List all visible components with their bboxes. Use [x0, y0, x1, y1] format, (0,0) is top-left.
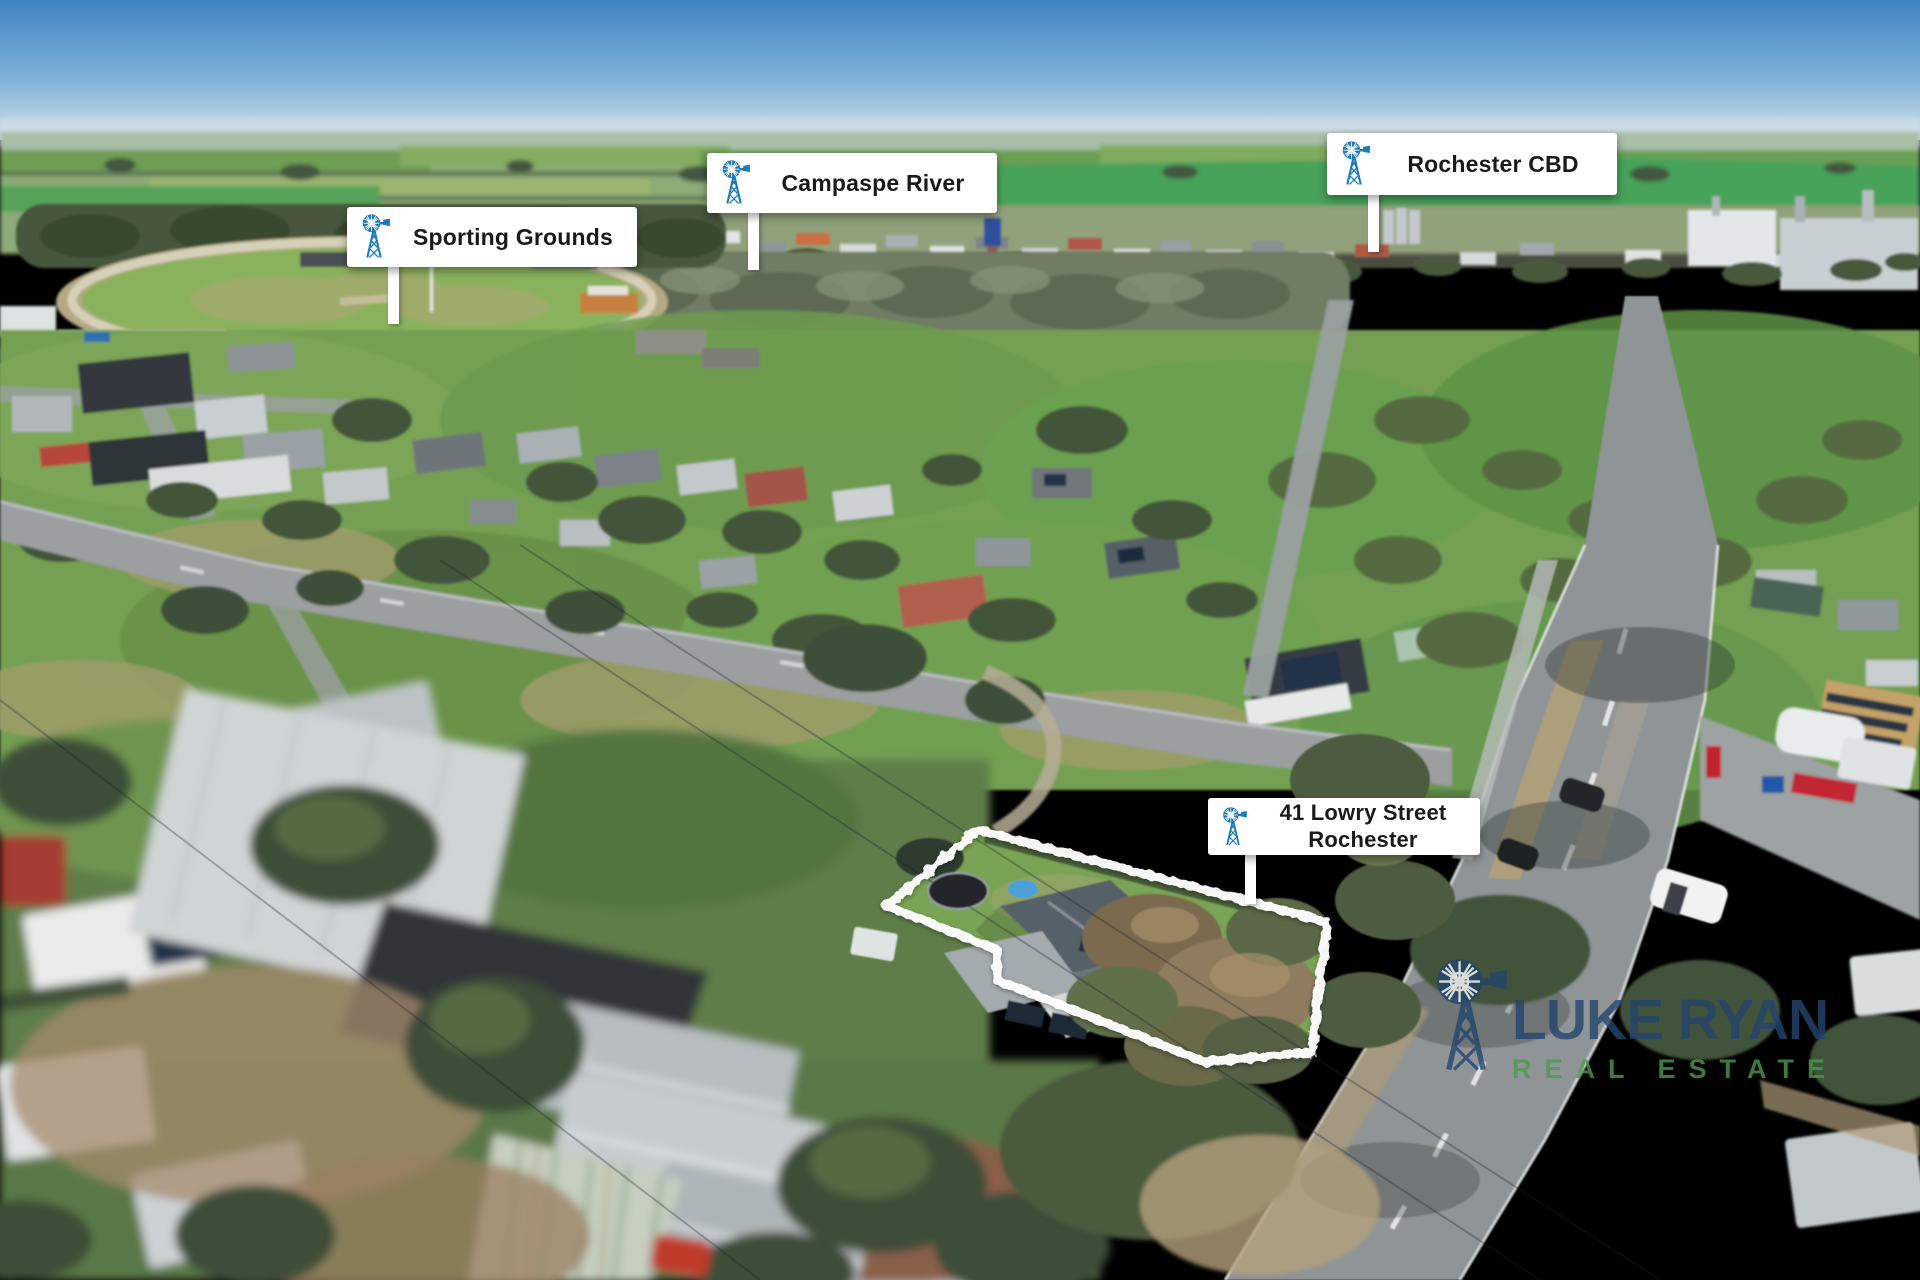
windmill-icon [357, 214, 391, 260]
watermark-text: LUKE RYAN REAL ESTATE [1512, 958, 1838, 1085]
luke-ryan-watermark: LUKE RYAN REAL ESTATE [1422, 958, 1838, 1085]
label-pointer-rochester-cbd [1368, 192, 1379, 252]
label-pointer-campaspe-river [748, 210, 759, 270]
windmill-icon [1218, 807, 1248, 847]
label-text: 41 Lowry Street Rochester [1256, 800, 1470, 854]
label-pointer-property [1245, 852, 1256, 904]
label-rochester-cbd: Rochester CBD [1327, 133, 1617, 195]
windmill-icon [1422, 958, 1510, 1076]
label-text: Campaspe River [759, 170, 987, 197]
aerial-photo: Sporting Grounds Campaspe River Rocheste… [0, 0, 1920, 1280]
property-address-line1: 41 Lowry Street [1256, 800, 1470, 827]
windmill-icon [717, 160, 751, 206]
label-sporting-grounds: Sporting Grounds [347, 207, 637, 267]
label-property-address: 41 Lowry Street Rochester [1208, 798, 1480, 855]
brand-name: LUKE RYAN [1512, 992, 1838, 1049]
windmill-icon [1337, 141, 1371, 187]
brand-tagline: REAL ESTATE [1512, 1054, 1838, 1085]
label-text: Sporting Grounds [399, 224, 627, 251]
label-text: Rochester CBD [1379, 151, 1607, 178]
label-campaspe-river: Campaspe River [707, 153, 997, 213]
property-address-line2: Rochester [1256, 827, 1470, 854]
label-pointer-sporting-grounds [388, 264, 399, 324]
